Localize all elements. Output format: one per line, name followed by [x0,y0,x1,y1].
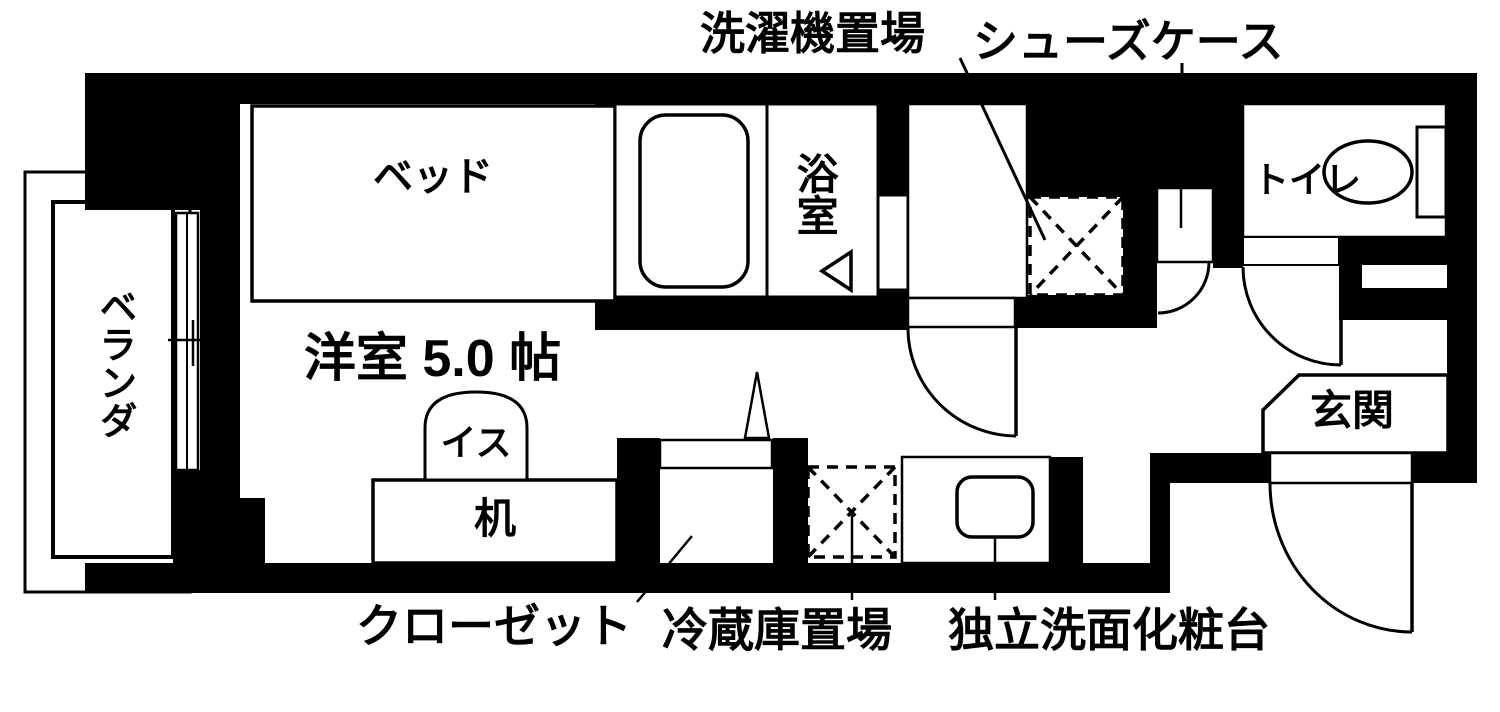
washer-room [908,104,1027,298]
wall-below-washer-pad [1015,295,1123,328]
washer-door-arc [908,328,1016,436]
shoe-case-icon [1157,188,1213,262]
vanity-label: 独立洗面化粧台 [948,606,1270,654]
wall-bottom [85,563,1153,593]
bed-label: ベッド [330,156,536,198]
wall-left [200,205,240,470]
wall-top [85,73,1477,104]
wall-bath-bottom [595,297,908,330]
closet-shelf [660,440,772,468]
closet-fold-door-icon [745,372,769,438]
wall-shoecase-right [1213,104,1243,268]
bathroom-door-panel [878,195,908,290]
entrance-label: 玄関 [1310,389,1394,433]
bathroom-label: 浴室 [792,152,836,236]
fridge-area-label: 冷蔵庫置場 [662,606,892,654]
wall-entry-nook [1362,288,1447,320]
entrance-door-arc [1270,483,1412,632]
closet-label: クローゼット [356,602,632,650]
toilet-doorway [1243,237,1339,265]
toilet-door-arc [1243,267,1341,365]
floorplan-canvas: 洗濯機置場 シューズケース 洋室 5.0 帖 ベッド 浴室 トイレ ベランダ イ… [0,0,1500,712]
bathtub-icon [640,115,748,287]
toilet-tank-icon [1417,127,1446,217]
wall-bottom-right-a [1170,453,1270,483]
shoe-case-label: シューズケース [973,18,1284,65]
washer-pad-icon [1030,197,1123,295]
bed [252,106,615,301]
toilet-label: トイレ [1253,161,1361,199]
wall-right [1447,73,1477,483]
wall-above-shoecase [1157,104,1213,188]
entrance-doorway [1270,453,1412,483]
sink-icon [957,477,1033,537]
chair-label: イス [426,424,526,462]
shoecase-door-arc [1158,262,1209,313]
wall-bottom-right-b [1412,453,1447,483]
veranda-label: ベランダ [93,287,133,439]
wall-left-step [173,470,240,565]
wall-desk-side [617,438,660,563]
wall-below-toilet [1339,237,1447,265]
washer-area-label: 洗濯機置場 [700,10,925,57]
entry-step-nook [1362,265,1447,288]
main-room-label: 洋室 5.0 帖 [255,332,610,387]
wall-closet-side [773,438,808,563]
wall-above-washer-pad [1027,104,1123,197]
wall-left-step2 [240,498,265,565]
wall-shoecase-left [1123,104,1157,328]
desk-label: 机 [445,497,545,541]
wall-left-corner [85,73,240,210]
wall-bottom-riser [1150,453,1170,593]
washer-room-doorway [908,298,1015,327]
wall-vanity-side [1050,457,1083,563]
